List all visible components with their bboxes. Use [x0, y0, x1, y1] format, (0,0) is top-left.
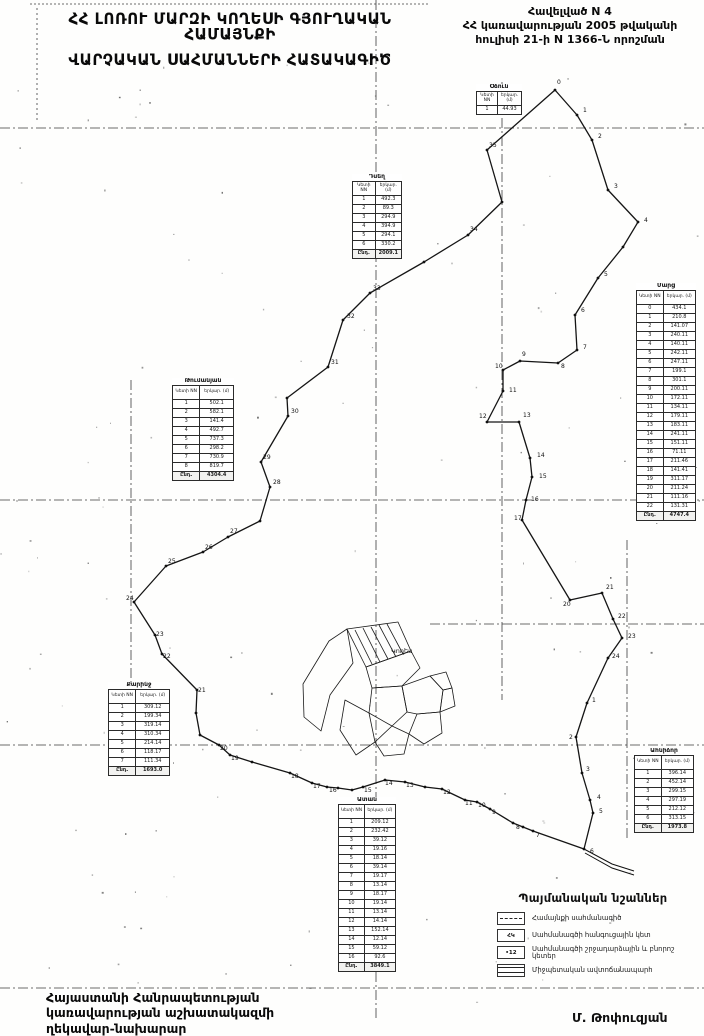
table-cell: 4747.4 — [663, 512, 695, 521]
table-cell: 13.14 — [364, 909, 395, 918]
table-cell: 20 — [637, 485, 664, 494]
table-cell: 240.11 — [663, 332, 695, 341]
table-cell: 299.15 — [661, 788, 693, 797]
table-header-cell: երկար. (մ) — [136, 690, 170, 704]
scan-noise-speck — [40, 654, 42, 655]
scan-noise-speck — [629, 872, 631, 873]
table-cell: 3 — [109, 722, 136, 731]
table-cell: 140.11 — [663, 341, 695, 350]
scan-noise-speck — [521, 452, 522, 453]
table-cell: 241.11 — [663, 431, 695, 440]
table-cell: 1 — [477, 106, 498, 115]
boundary-point — [512, 822, 515, 825]
boundary-point-label: 6 — [581, 307, 585, 314]
scan-noise-speck — [610, 577, 612, 579]
scan-noise-speck — [555, 293, 556, 294]
scan-noise-speck — [118, 964, 120, 966]
table-cell: 294.1 — [375, 232, 401, 241]
table-cell: 19 — [637, 476, 664, 485]
boundary-point-label: 17 — [313, 783, 321, 790]
scan-noise-speck — [140, 928, 142, 930]
scan-noise-speck — [301, 361, 302, 362]
scan-noise-speck — [437, 243, 439, 244]
table-cell: 8 — [637, 377, 664, 386]
scan-noise-speck — [397, 675, 398, 676]
table-cell: 141.07 — [663, 323, 695, 332]
boundary-point-label: 26 — [205, 544, 213, 551]
legend-item: Միջպետական ավտոճանապարհ — [497, 964, 689, 977]
boundary-point-label: 3 — [586, 766, 590, 773]
scan-noise-speck — [188, 260, 190, 261]
table-cell: Ընդ. — [109, 767, 136, 776]
boundary-point — [574, 314, 577, 317]
boundary-point — [251, 761, 254, 764]
table-cell: 199.1 — [663, 368, 695, 377]
title-line-1: ՀՀ ԼՈՌՈՒ ՄԱՐԶԻ ԿՈՂԵՍԻ ԳՅՈՒՂԱԿԱՆ ՀԱՄԱՅՆՔԻ — [28, 11, 432, 43]
table-cell: 5 — [353, 232, 376, 241]
authority-line-3: ղեկավար-նախարար — [46, 1021, 274, 1036]
table-cell: 200.11 — [663, 386, 695, 395]
boundary-point-label: 18 — [291, 773, 299, 780]
boundary-point — [165, 565, 168, 568]
table-cell: 434.1 — [663, 305, 695, 314]
scan-noise-speck — [30, 540, 32, 542]
village-parcel — [409, 712, 442, 744]
boundary-point-label: 15 — [539, 473, 547, 480]
boundary-length-table: ԱտանԿետի NNերկար. (մ)1209.122232.42339.1… — [338, 797, 396, 972]
table-cell: 14 — [339, 936, 365, 945]
table-cell: 4 — [637, 341, 664, 350]
boundary-point-label: 34 — [470, 226, 478, 233]
boundary-point-label: 22 — [163, 653, 171, 660]
table-cell: 819.7 — [200, 463, 234, 472]
boundary-point-label: 20 — [563, 601, 571, 608]
boundary-point-label: 20 — [220, 745, 228, 752]
boundary-point-label: 32 — [347, 313, 355, 320]
scan-noise-speck — [568, 78, 569, 80]
table-cell: 16 — [637, 449, 664, 458]
scan-noise-speck — [75, 830, 77, 831]
scan-noise-speck — [16, 500, 18, 502]
scan-noise-speck — [355, 550, 356, 552]
table-cell: 1 — [109, 704, 136, 713]
boundary-point-label: 8 — [516, 824, 520, 831]
scan-noise-speck — [580, 652, 582, 653]
village-parcel-hatch — [371, 627, 388, 659]
boundary-length-table: ՕձունԿետի NNերկար. (մ)144.93 — [476, 84, 522, 115]
table-cell: 313.15 — [661, 815, 693, 824]
boundary-point — [327, 366, 330, 369]
boundary-length-table: ԹումանյանԿետի NNերկար. (մ)1502.12582.131… — [172, 378, 234, 481]
scan-noise-speck — [271, 693, 273, 695]
legend-title: Պայմանական նշաններ — [497, 891, 689, 905]
boundary-point — [557, 362, 560, 365]
scan-noise-speck — [110, 423, 111, 424]
scan-noise-speck — [225, 973, 227, 974]
village-parcel — [303, 629, 353, 731]
table-cell: 89.3 — [375, 205, 401, 214]
scan-noise-speck — [575, 561, 576, 562]
boundary-point — [342, 319, 345, 322]
scan-noise-speck — [230, 657, 232, 659]
scan-noise-speck — [263, 309, 264, 311]
village-parcel — [430, 672, 452, 690]
table-cell: 2 — [353, 205, 376, 214]
boundary-point-label: 2 — [598, 133, 602, 140]
boundary-point — [199, 734, 202, 737]
boundary-point-label: 35 — [489, 142, 497, 149]
boundary-point-label: 5 — [604, 271, 608, 278]
boundary-point — [589, 799, 592, 802]
legend-item-label: Համայնքի սահմանագիծ — [532, 915, 621, 922]
table-cell: 16 — [339, 954, 365, 963]
scan-noise-speck — [0, 553, 2, 554]
boundary-length-table: ԱհնիձորԿետի NNերկար. (մ)1396.142452.1432… — [634, 748, 694, 833]
table-header-cell: Կետի NN — [635, 756, 662, 770]
table-cell: 310.34 — [136, 731, 170, 740]
scan-noise-speck — [569, 427, 570, 429]
table-cell: 214.14 — [136, 740, 170, 749]
table-header-cell: Կետի NN — [339, 805, 365, 819]
table-cell: 9 — [339, 891, 365, 900]
table-header-cell: երկար. (մ) — [375, 182, 401, 196]
table-cell: 4 — [109, 731, 136, 740]
table-cell: 11 — [339, 909, 365, 918]
boundary-point — [525, 499, 528, 502]
page-title: ՀՀ ԼՈՌՈՒ ՄԱՐԶԻ ԿՈՂԵՍԻ ԳՅՈՒՂԱԿԱՆ ՀԱՄԱՅՆՔԻ… — [28, 12, 432, 68]
table-title: Քարինջ — [108, 682, 170, 688]
table-cell: 10 — [339, 900, 365, 909]
boundary-point-label: 13 — [523, 412, 531, 419]
table-cell: 297.19 — [661, 797, 693, 806]
scan-noise-speck — [476, 1002, 478, 1003]
scan-noise-speck — [275, 397, 277, 399]
table-cell: 1 — [173, 400, 200, 409]
boundary-point-label: 9 — [522, 351, 526, 358]
table-cell: 330.2 — [375, 241, 401, 250]
boundary-point — [581, 772, 584, 775]
boundary-point — [287, 415, 290, 418]
scan-noise-speck — [538, 307, 540, 309]
scan-noise-speck — [139, 104, 141, 106]
boundary-point-label: 16 — [329, 787, 337, 794]
authority-line-2: կառավարության աշխատակազմի — [46, 1005, 274, 1020]
village-parcel — [440, 688, 455, 712]
table-cell: 199.34 — [136, 713, 170, 722]
boundary-point — [424, 786, 427, 789]
table-cell: 18.17 — [364, 891, 395, 900]
boundary-point-label: 11 — [509, 387, 517, 394]
table-cell: 2 — [339, 828, 365, 837]
boundary-point-label: 2 — [569, 734, 573, 741]
scan-noise-speck — [29, 668, 31, 670]
table-cell: 111.34 — [136, 758, 170, 767]
boundary-point — [502, 390, 505, 393]
table-cell: 6 — [109, 749, 136, 758]
boundary-point-label: 22 — [618, 613, 626, 620]
scan-noise-speck — [140, 90, 142, 92]
table-header-cell: երկար. (մ) — [661, 756, 693, 770]
table-title: Օձուն — [476, 84, 522, 90]
boundary-point-label: 5 — [599, 808, 603, 815]
table-cell: 298.2 — [200, 445, 234, 454]
table-cell: 15 — [339, 945, 365, 954]
table-cell: 582.1 — [200, 409, 234, 418]
boundary-point — [597, 277, 600, 280]
boundary-point-label: 7 — [583, 344, 587, 351]
boundary-point-label: 19 — [231, 755, 239, 762]
table-cell: 21 — [637, 494, 664, 503]
annex-number: Հավելված N 4 — [440, 5, 700, 19]
scan-noise-speck — [217, 796, 218, 798]
boundary-point-label: 1 — [583, 107, 587, 114]
table-cell: 71.11 — [663, 449, 695, 458]
village-parcel-hatch — [355, 630, 372, 664]
table-cell: 3 — [637, 332, 664, 341]
scan-noise-speck — [257, 417, 259, 419]
table-header-cell: Կետի NN — [353, 182, 376, 196]
table-cell: 12 — [339, 918, 365, 927]
table-title: Դսեղ — [352, 174, 402, 180]
boundary-point — [486, 421, 489, 424]
scan-noise-speck — [106, 598, 108, 599]
scan-noise-speck — [125, 833, 126, 835]
boundary-point-label: 12 — [479, 413, 487, 420]
table-cell: 44.93 — [498, 106, 522, 115]
table-cell: 242.11 — [663, 350, 695, 359]
table-cell: 212.12 — [661, 806, 693, 815]
table-cell: 2009.1 — [375, 250, 401, 259]
scan-noise-speck — [684, 123, 686, 125]
scan-noise-speck — [92, 874, 93, 875]
boundary-point — [607, 189, 610, 192]
table-cell: 301.1 — [663, 377, 695, 386]
scan-noise-speck — [343, 726, 345, 727]
scan-noise-speck — [624, 461, 626, 462]
issuing-authority: Հայաստանի Հանրապետության կառավարության ա… — [46, 990, 274, 1036]
table-cell: 4 — [339, 846, 365, 855]
boundary-point-label: 7 — [536, 832, 540, 839]
scan-noise-speck — [387, 105, 389, 106]
boundary-point — [337, 787, 340, 790]
table-cell: 4 — [353, 223, 376, 232]
table-cell: 394.9 — [375, 223, 401, 232]
boundary-point-label: 14 — [537, 452, 545, 459]
legend-item: Համայնքի սահմանագիծ — [497, 912, 689, 925]
scan-noise-speck — [173, 234, 174, 235]
boundary-length-table: ՄարցԿետի NNերկար. (մ)0434.11210.82141.07… — [636, 283, 696, 521]
boundary-point-label: 13 — [406, 782, 414, 789]
table-cell: 294.9 — [375, 214, 401, 223]
scan-noise-speck — [149, 102, 150, 104]
boundary-point — [522, 826, 525, 829]
scan-noise-speck — [628, 627, 629, 629]
table-cell: 118.17 — [136, 749, 170, 758]
scan-noise-speck — [523, 563, 524, 565]
scan-noise-speck — [62, 706, 63, 707]
scan-noise-speck — [37, 557, 38, 558]
boundary-point — [369, 292, 372, 295]
boundary-point — [423, 261, 426, 264]
scan-noise-speck — [142, 367, 144, 369]
scan-noise-speck — [173, 762, 174, 764]
boundary-point — [591, 139, 594, 142]
scan-noise-speck — [28, 571, 29, 573]
scan-noise-speck — [21, 182, 23, 183]
scan-noise-speck — [96, 427, 97, 428]
scan-noise-speck — [18, 90, 19, 92]
village-parcel — [369, 686, 407, 726]
table-cell: 12 — [637, 413, 664, 422]
scan-noise-speck — [550, 597, 552, 599]
table-cell: 6 — [637, 359, 664, 368]
table-cell: 9 — [637, 386, 664, 395]
boundary-point-label: 28 — [273, 479, 281, 486]
table-cell: 131.31 — [663, 503, 695, 512]
table-cell: 17 — [637, 458, 664, 467]
boundary-point — [486, 149, 489, 152]
scan-noise-speck — [372, 347, 373, 348]
table-cell: 134.11 — [663, 404, 695, 413]
table-cell: 183.11 — [663, 422, 695, 431]
scan-noise-speck — [173, 876, 174, 877]
scan-noise-speck — [102, 892, 104, 894]
boundary-point-label: 4 — [644, 217, 648, 224]
boundary-point-label: 4 — [597, 794, 601, 801]
annex-decree-line2: հուլիսի 21-ի N 1366-Ն որոշման — [440, 33, 700, 47]
table-cell: 18.14 — [364, 855, 395, 864]
table-cell: 6 — [173, 445, 200, 454]
scan-noise-speck — [222, 192, 223, 194]
table-cell: 7 — [339, 873, 365, 882]
table-header-cell: երկար. (մ) — [200, 386, 234, 400]
table-cell: 111.16 — [663, 494, 695, 503]
table-cell: 247.11 — [663, 359, 695, 368]
boundary-point — [621, 637, 624, 640]
boundary-point — [259, 520, 262, 523]
table-cell: 12.14 — [364, 936, 395, 945]
scan-noise-speck — [156, 830, 157, 832]
table-header-cell: երկար. (մ) — [663, 291, 695, 305]
scan-noise-speck — [119, 97, 121, 98]
scan-noise-speck — [620, 398, 621, 399]
table-cell: 5 — [635, 806, 662, 815]
boundary-point-label: 30 — [291, 408, 299, 415]
table-cell: 152.14 — [364, 927, 395, 936]
table-cell: 14 — [637, 431, 664, 440]
scan-noise-speck — [104, 190, 105, 192]
boundary-point — [286, 397, 289, 400]
scan-noise-speck — [426, 919, 427, 920]
table-header-cell: երկար. (մ) — [364, 805, 395, 819]
table-cell: 3 — [173, 418, 200, 427]
signature-name: Մ. Թոփուզյան — [572, 1010, 668, 1025]
boundary-point-label: 15 — [364, 787, 372, 794]
scan-noise-speck — [554, 649, 555, 651]
boundary-point — [489, 808, 492, 811]
scan-noise-speck — [103, 507, 104, 508]
scan-noise-speck — [241, 652, 243, 654]
table-title: Ահնիձոր — [634, 748, 694, 754]
authority-line-1: Հայաստանի Հանրապետության — [46, 990, 274, 1005]
table-cell: 5 — [339, 855, 365, 864]
boundary-point-label: 16 — [531, 496, 539, 503]
table-cell: 319.14 — [136, 722, 170, 731]
table-cell: 4304.4 — [200, 472, 234, 481]
village-parcel-hatch — [363, 628, 380, 662]
table-cell: Ընդ. — [173, 472, 200, 481]
scanned-map-page: 0123456789101112131415161720212223241234… — [0, 0, 704, 1036]
village-name-label: Կողես — [391, 647, 412, 655]
table-cell: Ընդ. — [637, 512, 664, 521]
boundary-point-label: 21 — [606, 584, 614, 591]
table-cell: 5 — [173, 436, 200, 445]
scan-noise-speck — [523, 224, 525, 226]
boundary-point-label: 23 — [156, 631, 164, 638]
table-cell: 209.12 — [364, 819, 395, 828]
boundary-point-label: 24 — [612, 653, 620, 660]
table-cell: 492.3 — [375, 196, 401, 205]
scan-noise-speck — [7, 721, 8, 722]
table-cell: 3 — [339, 837, 365, 846]
boundary-point — [532, 830, 535, 833]
table-cell: 13 — [339, 927, 365, 936]
boundary-length-table: ԴսեղԿետի NNերկար. (մ)1492.3289.33294.943… — [352, 174, 402, 259]
table-cell: 311.17 — [663, 476, 695, 485]
legend-items: Համայնքի սահմանագիծՀԿՍահմանագծի հանգուցա… — [497, 912, 689, 977]
table-cell: 1 — [339, 819, 365, 828]
scan-noise-speck — [88, 462, 89, 463]
scan-noise-speck — [309, 930, 310, 932]
table-title: Թումանյան — [172, 378, 234, 384]
table-cell: 141.4 — [200, 418, 234, 427]
table-cell: Ընդ. — [635, 824, 662, 833]
boundary-point-label: 29 — [263, 454, 271, 461]
boundary-point — [592, 812, 595, 815]
table-cell: 232.42 — [364, 828, 395, 837]
table-cell: 39.12 — [364, 837, 395, 846]
table-cell: 179.11 — [663, 413, 695, 422]
scan-noise-speck — [343, 403, 344, 404]
scan-noise-speck — [476, 620, 477, 621]
boundary-point — [637, 221, 640, 224]
table-cell: 141.41 — [663, 467, 695, 476]
legend-item: ՀԿՍահմանագծի հանգուցային կետ — [497, 929, 689, 942]
table-cell: 1693.0 — [136, 767, 170, 776]
table-cell: 3849.1 — [364, 963, 395, 972]
scan-noise-speck — [88, 119, 89, 121]
table-title: Մարց — [636, 283, 696, 289]
scan-noise-speck — [135, 892, 136, 893]
table-cell: 2 — [635, 779, 662, 788]
scan-noise-speck — [484, 747, 485, 748]
boundary-point — [351, 789, 354, 792]
boundary-point-label: 9 — [492, 809, 496, 816]
table-cell: 0 — [637, 305, 664, 314]
table-cell: 19.16 — [364, 846, 395, 855]
table-cell: 3 — [353, 214, 376, 223]
boundary-point — [586, 702, 589, 705]
table-cell: 2 — [109, 713, 136, 722]
scan-noise-speck — [651, 652, 653, 654]
scan-noise-speck — [88, 563, 89, 564]
table-cell: 13 — [637, 422, 664, 431]
boundary-point — [622, 246, 625, 249]
table-cell: 7 — [109, 758, 136, 767]
table-cell: 1 — [637, 314, 664, 323]
annex-decree-line1: ՀՀ կառավարության 2005 թվականի — [440, 19, 700, 33]
table-cell: 39.14 — [364, 864, 395, 873]
